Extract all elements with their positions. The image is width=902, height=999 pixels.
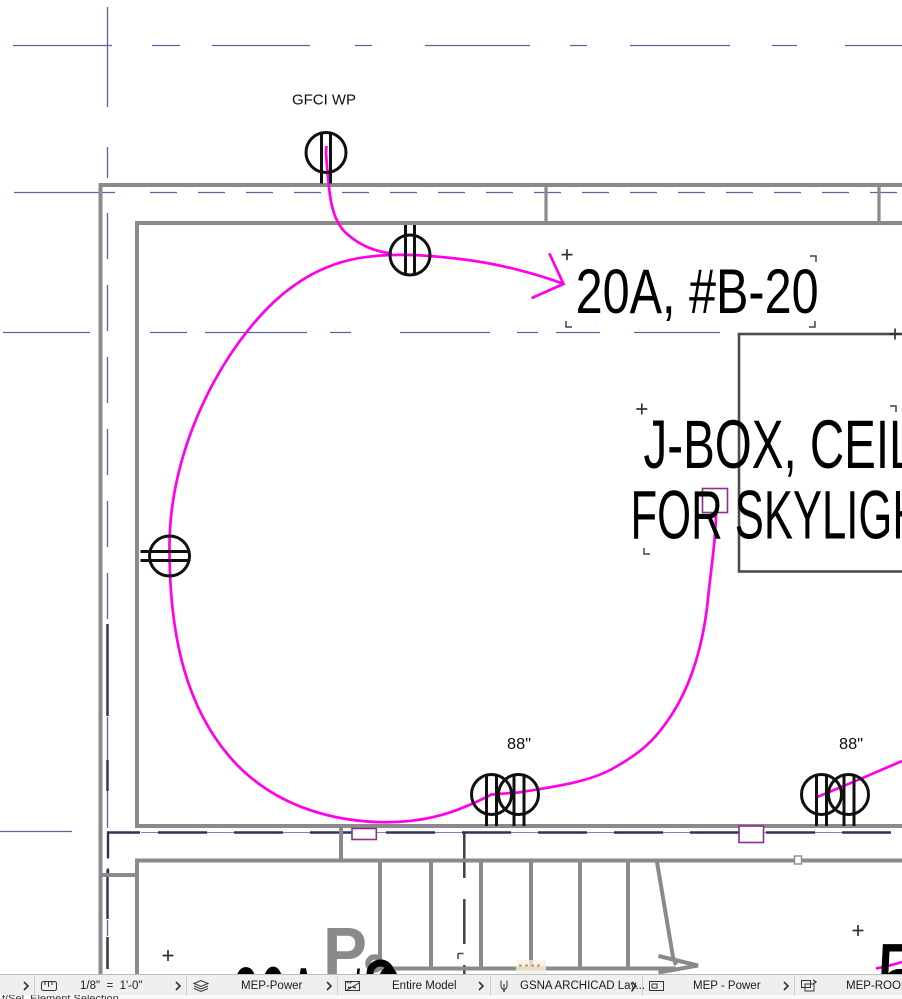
svg-text:GFCI WP: GFCI WP bbox=[292, 92, 356, 109]
svg-text:88": 88" bbox=[839, 736, 863, 753]
svg-text:20A, #B-20: 20A, #B-20 bbox=[576, 257, 819, 327]
svg-text:88": 88" bbox=[507, 736, 531, 753]
svg-text:J-BOX, CEIL: J-BOX, CEIL bbox=[644, 407, 902, 483]
svg-text:FOR SKYLIGHT: FOR SKYLIGHT bbox=[631, 478, 902, 554]
